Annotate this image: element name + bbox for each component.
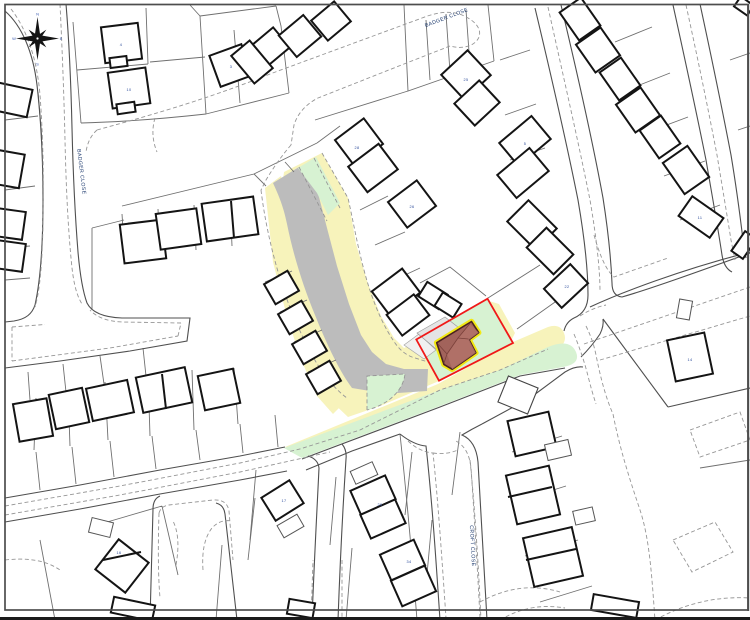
svg-text:W: W: [12, 36, 16, 41]
svg-text:25: 25: [463, 78, 468, 82]
svg-text:26: 26: [409, 205, 414, 209]
svg-text:N: N: [36, 12, 39, 17]
svg-text:20: 20: [377, 503, 382, 507]
svg-text:E: E: [60, 36, 63, 41]
svg-text:16: 16: [116, 551, 121, 555]
svg-text:34: 34: [406, 560, 411, 564]
svg-text:28: 28: [354, 146, 359, 150]
svg-text:11: 11: [698, 216, 703, 220]
svg-text:22: 22: [564, 285, 569, 289]
svg-text:3: 3: [230, 65, 233, 69]
svg-text:10: 10: [126, 88, 131, 92]
svg-text:14: 14: [687, 358, 692, 362]
svg-text:5: 5: [524, 142, 527, 146]
svg-text:17: 17: [281, 499, 286, 503]
svg-text:S: S: [36, 62, 39, 67]
svg-text:4: 4: [120, 43, 123, 47]
